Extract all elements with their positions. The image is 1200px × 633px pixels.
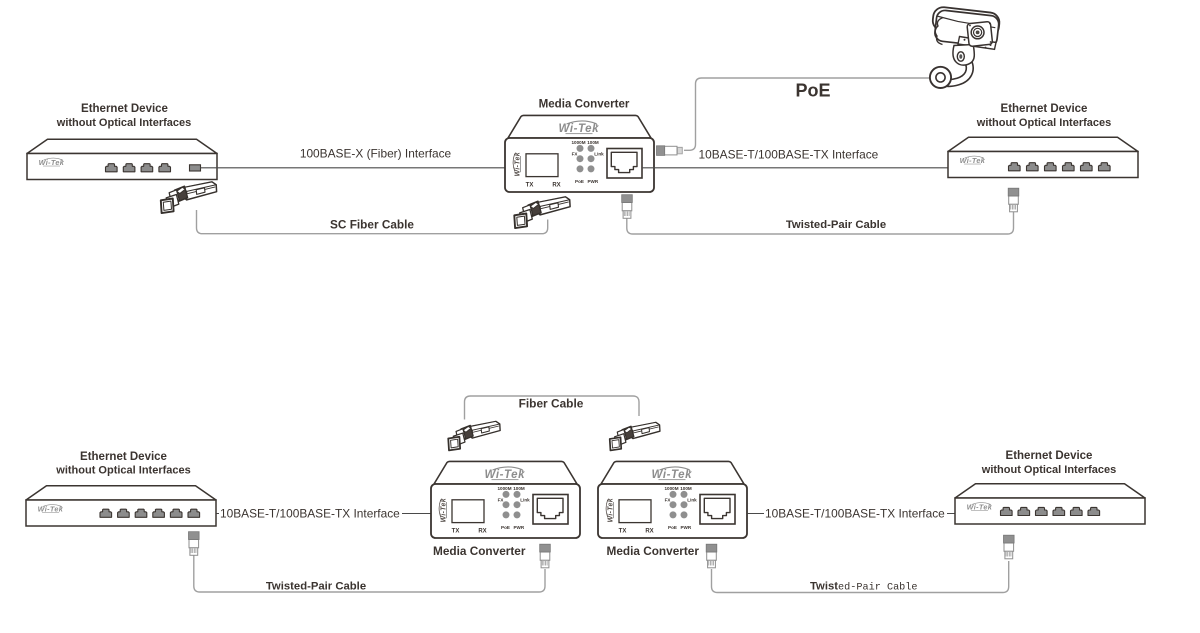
svg-text:10BASE-T/100BASE-TX Interface: 10BASE-T/100BASE-TX Interface — [765, 507, 945, 521]
svg-text:SC Fiber Cable: SC Fiber Cable — [330, 218, 414, 232]
svg-text:Fiber Cable: Fiber Cable — [519, 397, 584, 411]
svg-text:10BASE-T/100BASE-TX Interface: 10BASE-T/100BASE-TX Interface — [699, 148, 879, 162]
svg-text:Ethernet Device: Ethernet Device — [1001, 103, 1088, 115]
svg-text:without Optical Interfaces: without Optical Interfaces — [56, 117, 191, 129]
svg-text:10BASE-T/100BASE-TX Interface: 10BASE-T/100BASE-TX Interface — [220, 507, 400, 521]
svg-text:Ethernet Device: Ethernet Device — [81, 103, 168, 115]
svg-text:Ethernet Device: Ethernet Device — [80, 451, 167, 463]
svg-text:100BASE-X (Fiber) Interface: 100BASE-X (Fiber) Interface — [300, 147, 452, 161]
svg-text:Media Converter: Media Converter — [607, 544, 700, 558]
svg-text:without Optical Interfaces: without Optical Interfaces — [976, 117, 1111, 129]
svg-text:Twisted-Pair Cable: Twisted-Pair Cable — [786, 219, 886, 231]
svg-text:Ethernet Device: Ethernet Device — [1006, 450, 1093, 462]
svg-text:without Optical Interfaces: without Optical Interfaces — [981, 464, 1116, 476]
svg-text:Twisted-Pair Cable: Twisted-Pair Cable — [266, 581, 366, 593]
svg-text:without Optical Interfaces: without Optical Interfaces — [55, 464, 190, 476]
svg-text:Media Converter: Media Converter — [433, 544, 526, 558]
svg-text:Twisted-Pair Cable: Twisted-Pair Cable — [810, 580, 918, 593]
svg-text:PoE: PoE — [795, 80, 830, 100]
svg-text:Media Converter: Media Converter — [539, 98, 630, 111]
